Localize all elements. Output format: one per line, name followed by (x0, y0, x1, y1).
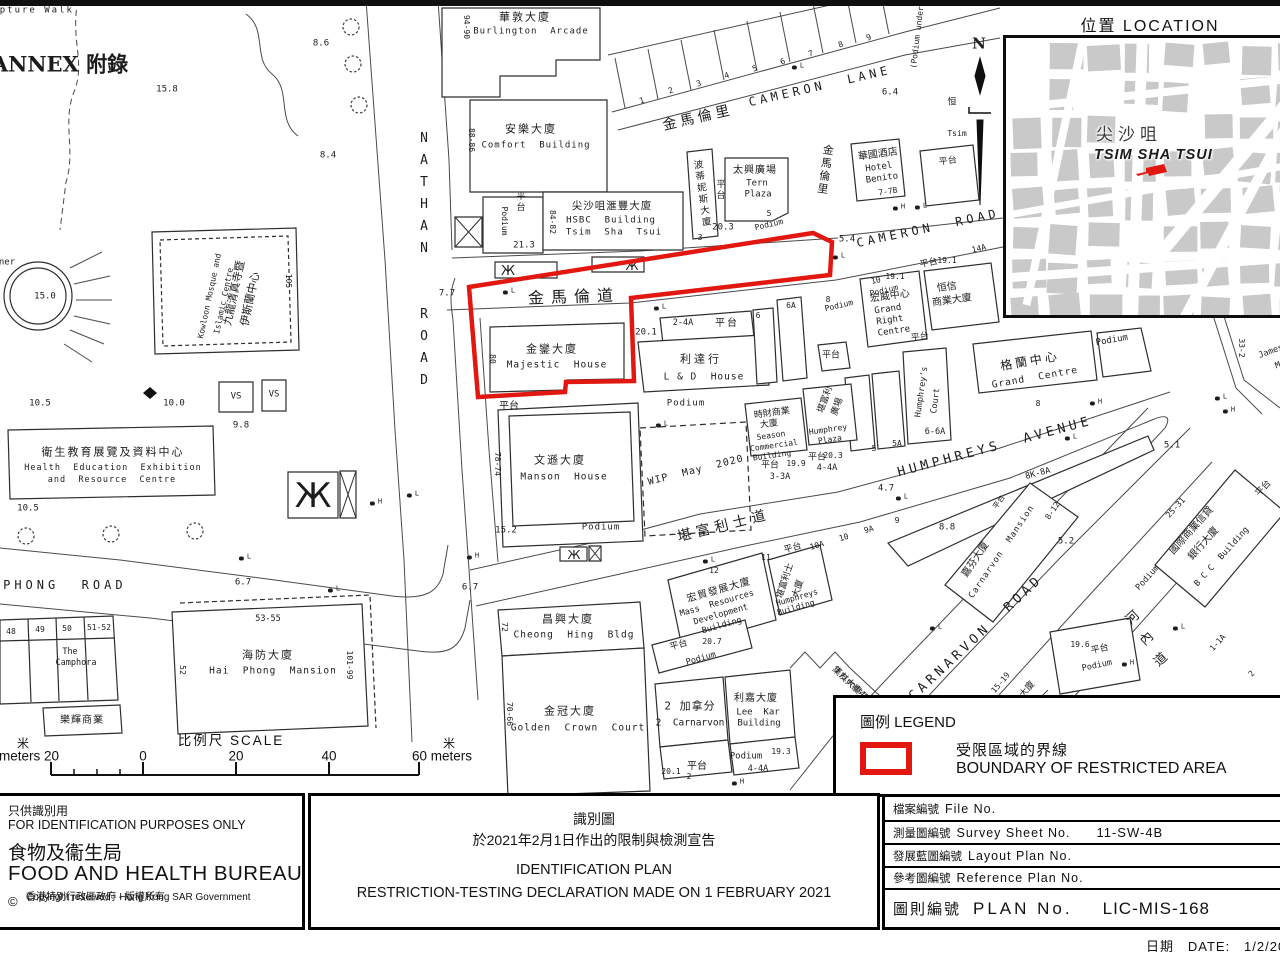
map-label: 19.6 (1070, 641, 1089, 649)
map-label: 6.7 (462, 584, 478, 593)
map-label: 平台 (669, 639, 689, 653)
map-label: L (336, 586, 340, 593)
map-label: Comfort Building (481, 142, 590, 151)
map-label: 華國酒店 (857, 147, 898, 162)
map-label: 5 (872, 445, 877, 453)
plan-reference-table: 檔案編號 File No. 測量圖編號 Survey Sheet No. 11-… (882, 797, 1280, 930)
map-label: 利嘉大廈 (734, 694, 778, 704)
note-en: FOR IDENTIFICATION PURPOSES ONLY (8, 818, 246, 832)
identification-plan-sheet: Ж Ж Ж Ж Sculpture WalkANNEX 附錄ner15.88.6… (0, 0, 1280, 960)
map-label: Court (930, 388, 942, 415)
legend-boundary-zh: 受限區域的界線 (956, 739, 1068, 760)
inset-title: 位置 LOCATION (1040, 12, 1260, 36)
map-label: 道 (1152, 651, 1170, 669)
map-label: Burlington Arcade (473, 28, 589, 37)
map-label: 2 (667, 86, 674, 95)
map-label: 1-1A (1209, 633, 1228, 653)
map-label: 5.4 (839, 236, 855, 245)
map-label: 15.8 (156, 86, 178, 95)
map-label: 5 (767, 210, 772, 218)
map-label: 昌興大廈 (542, 614, 594, 625)
map-label: L & D House (664, 372, 745, 382)
map-label: 6 (756, 312, 761, 320)
map-label: Plaza (744, 191, 771, 200)
map-label: James (1258, 344, 1280, 361)
map-label: 4-4A (817, 464, 837, 473)
map-label: The (62, 648, 77, 657)
map-label: H (1130, 660, 1134, 667)
map-label: 9A (863, 525, 874, 535)
map-label: L (1073, 434, 1077, 441)
map-label: 20.1 (661, 768, 680, 776)
scale-left-label: meters 20 (0, 749, 59, 764)
map-label: 5.1 (1164, 442, 1180, 451)
table-row-file-no: 檔案編號 File No. (885, 797, 1280, 822)
map-label: 6A (786, 302, 796, 310)
map-label: 4.7 (878, 485, 894, 494)
map-label: 10.0 (163, 400, 185, 409)
map-label: ner (0, 259, 15, 268)
map-label: 20.7 (702, 638, 721, 646)
map-label: 10.5 (29, 400, 51, 409)
map-label: HUMPHREYS AVENUE (896, 415, 1094, 480)
bureau-en: FOOD AND HEALTH BUREAU (8, 862, 302, 886)
map-label: 80 (488, 354, 496, 364)
map-label: 恒 (947, 99, 956, 108)
map-label: 52 (178, 665, 186, 675)
map-label: L (1223, 394, 1227, 401)
map-label: H (378, 499, 382, 506)
map-label: 平台 (499, 402, 519, 412)
map-label: 48 (6, 628, 16, 636)
map-label: Cheong Hing Bldg (514, 630, 635, 640)
plan-date: 日期 DATE: 1/2/2021 (1146, 936, 1280, 955)
plan-title-box: 識別圖 於2021年2月1日作出的限制與檢測宣告 IDENTIFICATION … (308, 793, 880, 930)
map-label: 6.7 (235, 579, 251, 588)
map-label: Hai Phong Mansion (209, 666, 337, 676)
map-label: 10.5 (17, 505, 39, 514)
map-label: 25-31 (1165, 496, 1187, 519)
map-label: Tern (746, 180, 768, 189)
scale-unit-zh-right: 米 (443, 735, 455, 752)
map-label: Health Education Exhibition (24, 464, 201, 473)
map-label: 105 (284, 274, 292, 288)
map-label: L (247, 554, 251, 561)
map-label: (Podium under) (910, 1, 926, 69)
map-label: 樂輝商業 (60, 716, 104, 726)
map-label: 19.1 (937, 257, 956, 265)
map-label: Benito (865, 172, 898, 185)
map-label: NATHAN ROAD (418, 131, 431, 395)
table-row-layout-plan-no: 發展藍圖編號 Layout Plan No. (885, 845, 1280, 868)
map-label: 33-2 (1237, 338, 1245, 357)
map-label: 72 (500, 622, 508, 632)
bureau-zh: 食物及衞生局 (8, 838, 122, 865)
inset-restricted-marker (1136, 164, 1167, 176)
map-label: 101-99 (345, 651, 353, 680)
map-label: 8.6 (313, 40, 329, 49)
map-label: 平台 (992, 494, 1007, 511)
map-label: Plaza (818, 434, 843, 445)
copyright-icon: © (8, 894, 18, 909)
declaration-zh: 於2021年2月1日作出的限制與檢測宣告 (311, 830, 877, 850)
map-label: L (841, 253, 845, 260)
map-label: 內 (1138, 630, 1156, 648)
map-label: 金冠大廈 (544, 706, 596, 717)
map-label: Lee Kar (736, 709, 779, 718)
map-label: 平台 (910, 332, 929, 343)
map-label: Sculpture Walk (0, 7, 74, 16)
map-label: L (938, 624, 942, 631)
legend-title: 圖例 LEGEND (860, 711, 956, 732)
map-label: 恒信 (936, 282, 957, 295)
map-label: 53-55 (255, 615, 281, 624)
map-label: 海防大廈 (242, 650, 294, 661)
map-label: H (1231, 407, 1235, 414)
plan-title-en: IDENTIFICATION PLAN (311, 862, 877, 878)
map-label: H (901, 204, 905, 211)
map-label: 3 (695, 79, 702, 88)
map-label: M (1274, 361, 1280, 371)
map-label: 5A (892, 440, 902, 448)
map-label: 平台 (919, 258, 939, 271)
map-label: 12 (709, 567, 719, 575)
map-label: 5 (751, 64, 758, 73)
plan-title-zh: 識別圖 (311, 809, 877, 829)
map-label: H (740, 779, 744, 786)
map-label: Podium (730, 753, 763, 762)
map-label: 7 (807, 49, 814, 58)
map-label: 2 加拿分 (664, 701, 715, 712)
map-label: and Resource Centre (48, 476, 176, 485)
map-label: L (711, 557, 715, 564)
map-label: 廣場 (831, 397, 846, 417)
map-label: Podium (667, 400, 706, 409)
map-label: 平台 (1090, 644, 1109, 657)
map-label: 50 (62, 625, 72, 633)
map-label: 衛生教育展覽及資料中心 (42, 447, 185, 458)
map-label: Tsim Sha Tsui (566, 229, 662, 238)
map-label: Podium (754, 218, 784, 232)
map-label: 金鑾大廈 (526, 344, 578, 355)
map-label: Majestic House (507, 360, 608, 370)
map-label: 文遜大廈 (534, 455, 586, 466)
note-zh: 只供識別用 (8, 802, 68, 819)
map-label: 7.7 (439, 290, 455, 299)
map-label: CAMERON LANE (748, 64, 893, 109)
declaration-en: RESTRICTION-TESTING DECLARATION MADE ON … (311, 885, 877, 901)
map-label: 8-12 (1044, 501, 1061, 521)
map-label: Centre (877, 325, 910, 338)
map-label: VS (269, 391, 280, 400)
map-label: HAIPHONG ROAD (0, 579, 127, 591)
map-label: Humphrey's (914, 366, 930, 418)
map-label: 6-6A (925, 428, 945, 437)
map-label: Golden Crown Court (511, 723, 645, 733)
map-label: Podium (1135, 564, 1162, 593)
map-label: 9.8 (233, 422, 249, 431)
map-label: 84-82 (548, 210, 556, 234)
map-label: 平台 (822, 352, 840, 361)
map-label: 金馬倫里 (661, 103, 734, 133)
map-label: 金馬倫道 (528, 287, 621, 306)
map-label: HSBC Building (566, 217, 656, 226)
map-label: 尖沙咀滙豐大廈 (572, 201, 653, 212)
map-label: 大廈 (759, 419, 778, 430)
map-label: 安樂大廈 (505, 124, 557, 135)
map-label: 6.4 (882, 89, 898, 98)
location-inset-map: 尖沙咀 TSIM SHA TSUI (1003, 35, 1280, 318)
map-label: 華敦大廈 (499, 12, 551, 23)
map-label: L (800, 63, 804, 70)
scale-title: 比例尺 SCALE (178, 729, 285, 749)
table-row-survey-sheet-no: 測量圖編號 Survey Sheet No. 11-SW-4B (885, 822, 1280, 845)
map-label: 利達行 (680, 354, 722, 365)
map-label: N (972, 37, 986, 52)
sheet-top-border (0, 0, 1280, 6)
map-label: Manson House (520, 472, 607, 482)
map-label: 6 (779, 57, 786, 66)
restricted-area-symbol (860, 742, 912, 775)
map-label: Podium (1095, 334, 1129, 349)
inset-district-en: TSIM SHA TSUI (1094, 147, 1213, 163)
map-label: 70-66 (505, 702, 513, 726)
legend-box: 圖例 LEGEND 受限區域的界線 BOUNDARY OF RESTRICTED… (833, 695, 1280, 797)
map-label: 平台 (715, 179, 724, 201)
map-label: 平台 (938, 156, 957, 167)
map-label: L (923, 203, 927, 210)
map-label: 10A (809, 540, 825, 552)
map-label: ANNEX 附錄 (0, 54, 128, 75)
map-label: 金馬倫里 (816, 143, 834, 196)
map-label: 8 (837, 40, 844, 49)
map-label: VS (231, 393, 242, 402)
map-label: 平台 (783, 542, 803, 556)
map-label: 平台 (715, 319, 739, 329)
map-label: 15.2 (495, 527, 517, 536)
map-label: 2-4A (673, 319, 693, 328)
map-label: 2 Carnarvon (656, 718, 725, 728)
issuer-box: 只供識別用 FOR IDENTIFICATION PURPOSES ONLY 食… (0, 793, 305, 930)
map-label: L (511, 288, 515, 295)
map-label: Building (737, 720, 780, 729)
scale-tick-0: 0 (139, 749, 147, 764)
map-label: L (415, 491, 419, 498)
map-label: 商業大廈 (931, 293, 972, 308)
map-label: Podium (685, 651, 717, 668)
map-label: 3 (698, 234, 703, 242)
map-label: 8.4 (320, 152, 336, 161)
map-label: 10 (838, 533, 849, 543)
map-label: Podium (1081, 659, 1113, 674)
scale-tick-40: 40 (321, 749, 336, 764)
map-label: 20.3 (823, 452, 842, 460)
map-label: 19.9 (786, 460, 805, 468)
map-label: 4 (723, 71, 730, 80)
map-label: 8 (1036, 400, 1041, 408)
map-label: Podium (500, 207, 508, 236)
map-label: 88-86 (467, 128, 475, 152)
map-label: 20.1 (635, 329, 657, 338)
map-label: 平台 (1255, 479, 1274, 498)
map-label: 20.3 (712, 224, 734, 233)
map-label: 平台 (761, 462, 779, 471)
map-label: 平台 (515, 191, 524, 213)
map-label: B C C Building (1193, 526, 1251, 589)
map-label: 14A (971, 243, 987, 254)
map-label: 9 (895, 517, 900, 525)
map-label: 15.0 (34, 293, 56, 302)
map-label: 4-4A (748, 765, 768, 774)
map-label: 堪富利士道 (676, 508, 772, 545)
map-label: 19.3 (771, 748, 790, 756)
legend-boundary-en: BOUNDARY OF RESTRICTED AREA (956, 760, 1227, 778)
map-label: 49 (35, 626, 45, 634)
map-label: 河 (1124, 609, 1142, 627)
map-label: 8K-8A (1025, 467, 1052, 482)
map-label: Camphora (56, 659, 97, 668)
map-label: H (1098, 399, 1102, 406)
scale-tick-20: 20 (228, 749, 243, 764)
map-label: 94-90 (462, 15, 470, 39)
map-label: 10 (870, 276, 881, 286)
map-label: L (1181, 624, 1185, 631)
map-label: 51-52 (87, 624, 111, 632)
map-label: WIP May 2020 (647, 454, 745, 487)
map-label: Tsim (947, 130, 966, 138)
map-label: 2 (1247, 670, 1256, 679)
map-label: 9 (865, 33, 872, 42)
table-row-reference-plan-no: 參考圖編號 Reference Plan No. (885, 868, 1280, 890)
map-label: 8.8 (939, 524, 955, 533)
map-label: L (904, 494, 908, 501)
map-label: 19.1 (885, 273, 904, 281)
map-label: Podium (582, 524, 621, 533)
map-label: 11 (761, 554, 771, 562)
map-label: L (662, 304, 666, 311)
map-label: 1 (638, 96, 645, 105)
map-label: 15-19 (990, 671, 1012, 695)
map-label: 2 (687, 773, 692, 781)
map-label: 波蒂妮斯大廈 (691, 159, 710, 229)
inset-district-zh: 尖沙咀 (1096, 120, 1162, 145)
map-label: 5.2 (1058, 538, 1074, 547)
table-row-plan-no: 圖則編號 PLAN No. LIC-MIS-168 (885, 890, 1280, 930)
map-label: H (475, 553, 479, 560)
map-label: 太興廣場 (733, 166, 777, 176)
map-label: 21.3 (513, 242, 535, 251)
map-label: 78-74 (493, 452, 501, 476)
map-label: 3-3A (770, 473, 790, 482)
map-label: 7-7B (878, 187, 898, 198)
map-label: L (664, 421, 668, 428)
map-label: 平台 (687, 762, 707, 772)
